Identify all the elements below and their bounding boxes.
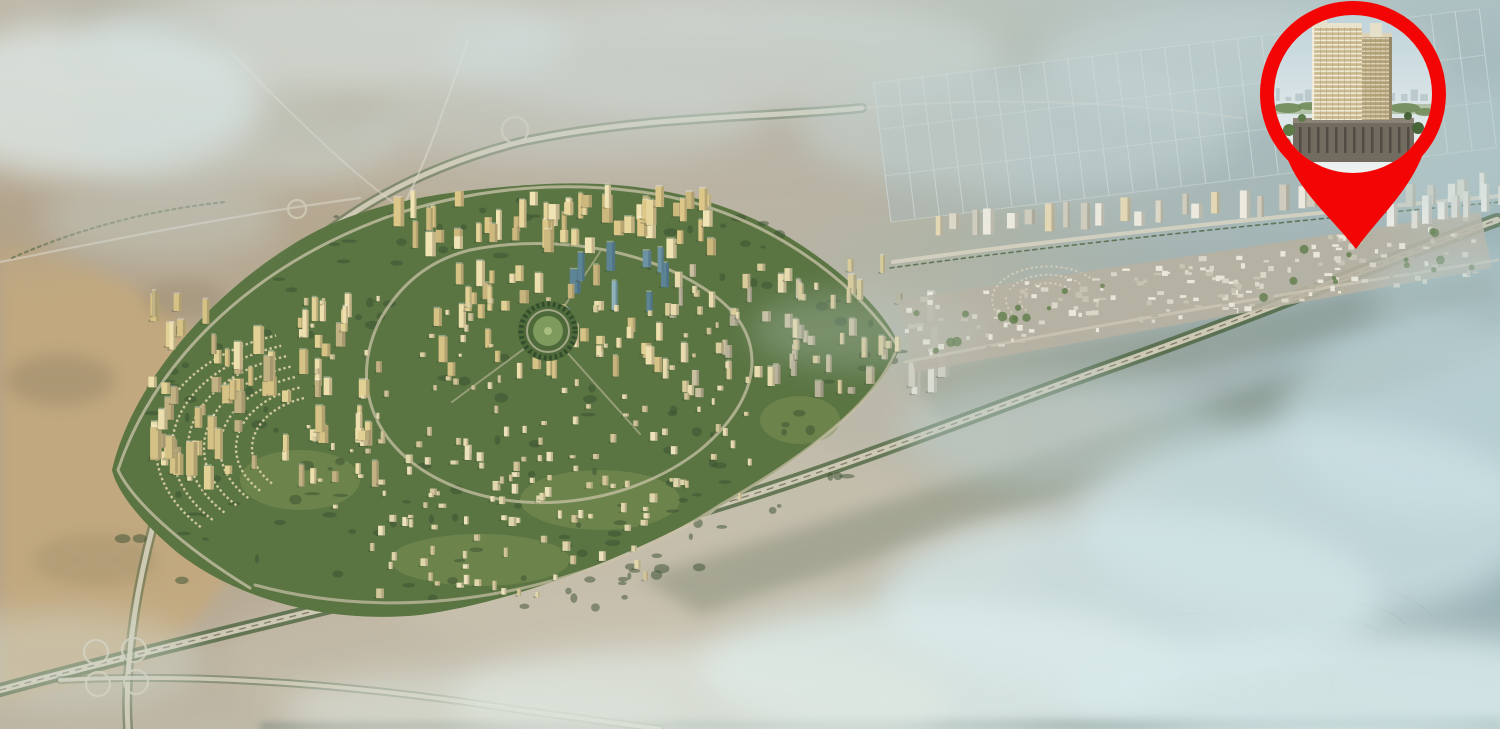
tree-blob — [144, 411, 159, 415]
building-side — [500, 375, 501, 382]
strip-block — [1078, 313, 1081, 317]
strip-green — [1022, 314, 1030, 322]
strip-block — [1210, 266, 1214, 271]
building-side — [436, 525, 438, 530]
building-roof — [681, 341, 687, 343]
building-roof — [234, 340, 241, 342]
building-side — [346, 306, 348, 323]
building-side — [416, 221, 418, 247]
building-side — [444, 504, 447, 508]
building-side — [691, 192, 694, 209]
building-roof — [643, 249, 650, 251]
strip-block — [1096, 302, 1099, 307]
building-side — [180, 454, 183, 475]
building-side — [412, 519, 413, 527]
building-side — [729, 361, 731, 368]
strip-block — [1267, 295, 1273, 301]
building-side — [763, 264, 766, 271]
building-side — [568, 541, 571, 550]
building-side — [721, 386, 723, 391]
tree-blob — [751, 278, 758, 287]
building-roof — [496, 209, 501, 211]
building-side — [1015, 213, 1019, 228]
tree-blob — [396, 238, 407, 246]
building-roof — [166, 435, 174, 437]
strip-block — [1029, 329, 1035, 333]
building-roof — [476, 222, 481, 224]
strip-green — [1300, 245, 1309, 254]
strip-block — [1227, 253, 1232, 256]
strip-block — [1222, 278, 1229, 283]
building-roof — [283, 433, 288, 435]
building-roof — [426, 206, 431, 208]
strip-block — [1260, 272, 1266, 278]
building-roof — [230, 378, 235, 380]
building-side — [612, 242, 615, 271]
strip-block — [1332, 244, 1339, 247]
strip-block — [1129, 300, 1133, 305]
building-side — [545, 421, 547, 425]
building-side — [607, 344, 608, 348]
podium-window — [1344, 127, 1347, 153]
tree-blob — [559, 535, 570, 539]
strip-block — [1222, 307, 1228, 310]
building-shadow — [714, 327, 716, 329]
building-side — [460, 236, 463, 249]
strip-block — [1021, 334, 1026, 337]
building-side — [420, 441, 422, 447]
building-side — [525, 426, 527, 433]
building-roof — [815, 379, 822, 381]
building-side — [713, 238, 716, 255]
tree-blob — [760, 246, 765, 249]
building-side — [617, 356, 619, 377]
building-side — [507, 301, 510, 311]
building-side — [648, 513, 650, 518]
building-side — [466, 551, 467, 559]
strip-block — [1017, 325, 1023, 331]
building-side — [432, 232, 436, 256]
building-roof — [357, 404, 361, 406]
tree-blob — [692, 427, 702, 436]
tree-blob — [454, 559, 466, 562]
strip-block — [1244, 306, 1251, 311]
building-roof — [578, 251, 584, 253]
building-side — [288, 390, 291, 402]
strip-block — [1295, 259, 1299, 262]
tree-blob — [133, 534, 147, 543]
building-side — [365, 431, 369, 441]
building-side — [841, 380, 842, 394]
strip-green — [1100, 283, 1105, 288]
strip-block — [952, 296, 955, 301]
strip-block — [1152, 268, 1155, 272]
building-roof — [202, 298, 207, 300]
building-roof — [605, 184, 610, 186]
building-side — [448, 310, 449, 315]
building-side — [991, 209, 995, 235]
building-side — [474, 292, 477, 304]
building-side — [646, 572, 648, 581]
building-side — [647, 507, 649, 511]
building-side — [1101, 203, 1104, 225]
building-roof — [195, 406, 201, 408]
tree-blob — [712, 462, 726, 468]
tree-blob — [758, 221, 769, 226]
tree-blob — [494, 435, 500, 445]
strip-block — [1309, 284, 1316, 289]
building-side — [207, 299, 209, 324]
strip-block — [1231, 288, 1236, 293]
building-side — [507, 548, 508, 557]
building-side — [541, 455, 542, 461]
building-side — [672, 478, 674, 482]
strip-block — [1229, 303, 1235, 307]
building-side — [234, 380, 236, 400]
building-side — [709, 210, 712, 226]
strip-block — [1153, 285, 1158, 290]
building-side — [450, 376, 452, 380]
building-side — [651, 292, 653, 312]
photo-tree — [1404, 112, 1412, 120]
building-side — [307, 298, 309, 306]
tree-blob — [274, 520, 286, 526]
tree-blob — [438, 246, 448, 253]
photo-skyline — [1276, 88, 1280, 101]
building-side — [467, 325, 468, 332]
building-side — [1051, 204, 1054, 232]
building-roof — [655, 185, 662, 187]
building-side — [638, 560, 640, 569]
tree-blob — [719, 480, 732, 484]
building-side — [380, 361, 382, 372]
building-side — [429, 457, 431, 464]
building-side — [514, 517, 517, 526]
strip-block — [1387, 243, 1392, 247]
building-side — [305, 350, 308, 375]
building-side — [379, 413, 380, 419]
building-roof — [686, 190, 693, 192]
building-side — [461, 354, 462, 357]
strip-block — [1184, 300, 1189, 303]
building-side — [459, 438, 461, 445]
building-roof — [880, 254, 884, 256]
building-side — [667, 359, 669, 379]
building-side — [433, 546, 434, 555]
building-side — [682, 288, 683, 306]
tree-blob — [781, 422, 789, 428]
strip-block — [1312, 245, 1316, 249]
building-roof — [434, 307, 441, 309]
building-roof — [248, 366, 252, 368]
tree-blob — [651, 570, 662, 580]
building-side — [715, 454, 717, 460]
building-side — [614, 434, 616, 443]
building-side — [383, 526, 385, 536]
tree-blob — [263, 406, 268, 412]
tree-blob — [528, 471, 535, 478]
tree-blob — [289, 495, 301, 505]
strip-block — [1093, 299, 1099, 302]
strip-green — [1013, 316, 1018, 321]
building-side — [602, 336, 605, 345]
strip-block — [1052, 302, 1058, 308]
building-side — [535, 192, 538, 206]
building-side — [511, 475, 512, 482]
building-side — [179, 294, 182, 311]
building-side — [661, 186, 664, 207]
strip-block — [1137, 281, 1144, 285]
building-roof — [174, 292, 180, 294]
strip-block — [1180, 306, 1186, 310]
building-side — [431, 572, 433, 580]
tower-wing — [1360, 36, 1392, 120]
podium-window — [1362, 127, 1365, 153]
tree-blob — [781, 429, 787, 436]
building-roof — [268, 350, 274, 352]
building-roof — [215, 427, 222, 429]
building-side — [1127, 197, 1130, 221]
strip-green — [1062, 288, 1068, 294]
photo-skyline — [1401, 94, 1407, 101]
building-roof — [413, 220, 417, 222]
building-side — [695, 353, 696, 357]
haze-cloud — [750, 290, 990, 370]
building-side — [252, 367, 254, 386]
building-side — [384, 431, 385, 439]
building-roof — [476, 259, 483, 261]
building-side — [570, 202, 573, 214]
building-roof — [253, 325, 262, 327]
building-roof — [643, 195, 649, 197]
building-side — [555, 357, 557, 378]
building-side — [549, 297, 551, 301]
building-side — [167, 382, 170, 394]
building-side — [598, 265, 600, 286]
strip-block — [1058, 298, 1063, 301]
building-side — [721, 343, 724, 354]
building-side — [517, 228, 519, 241]
strip-block — [1246, 291, 1252, 293]
building-roof — [299, 348, 306, 350]
building-side — [673, 239, 676, 259]
tower-main — [1312, 26, 1362, 120]
building-roof — [570, 268, 579, 270]
building-side — [631, 217, 635, 234]
strip-block — [1375, 249, 1378, 253]
building-side — [651, 347, 654, 365]
strip-block — [1216, 276, 1220, 282]
tower-highlight — [1312, 26, 1315, 120]
building-side — [518, 462, 520, 471]
strip-block — [1073, 302, 1077, 306]
building-side — [817, 283, 818, 290]
tree-blob — [348, 529, 356, 534]
building-roof — [535, 272, 542, 274]
building-side — [500, 210, 502, 240]
strip-block — [1313, 252, 1319, 258]
photo-skyline — [1392, 93, 1396, 101]
strip-block — [1193, 298, 1199, 302]
building-shadow — [320, 304, 322, 306]
strip-block — [1025, 281, 1030, 285]
building-side — [172, 436, 175, 458]
building-side — [541, 438, 542, 445]
building-side — [158, 427, 162, 459]
strip-block — [1237, 294, 1244, 298]
building-side — [505, 588, 507, 595]
building-side — [701, 388, 704, 397]
building-side — [1262, 196, 1264, 217]
strip-block — [1328, 235, 1333, 239]
building-side — [255, 455, 257, 469]
building-side — [464, 335, 466, 342]
building-side — [551, 229, 554, 252]
building-side — [470, 287, 472, 311]
tree-blob — [447, 577, 458, 585]
building-side — [750, 287, 752, 302]
tree-blob — [115, 534, 131, 543]
strip-green — [1289, 277, 1297, 285]
building-side — [629, 525, 631, 531]
building-side — [199, 441, 202, 456]
building-side — [666, 263, 669, 287]
building-roof — [263, 354, 271, 356]
building-side — [705, 188, 708, 210]
strip-block — [1451, 234, 1456, 237]
roof-box — [1370, 23, 1382, 37]
strip-block — [1218, 294, 1225, 297]
strip-block — [1069, 310, 1076, 316]
building-side — [467, 564, 469, 568]
building-side — [637, 420, 639, 426]
building-side — [734, 440, 736, 448]
building-side — [760, 366, 763, 377]
strip-block — [1195, 305, 1202, 307]
tree-blob — [769, 507, 777, 514]
building-side — [651, 310, 653, 316]
tree-blob — [202, 537, 209, 540]
building-side — [520, 363, 522, 379]
building-side — [1161, 200, 1163, 222]
building-side — [710, 328, 712, 335]
building-side — [175, 451, 178, 474]
tree-blob — [521, 575, 527, 581]
building-side — [240, 379, 244, 391]
strip-block — [1330, 286, 1335, 292]
podium-window — [1299, 127, 1302, 153]
strip-block — [1166, 309, 1170, 311]
strip-block — [1007, 290, 1011, 296]
building-side — [556, 575, 557, 580]
building-side — [242, 391, 246, 413]
tree-blob — [469, 547, 483, 552]
building-side — [430, 427, 432, 436]
strip-block — [1050, 292, 1057, 295]
building-side — [609, 185, 611, 208]
building-side — [394, 515, 396, 522]
tree-blob — [666, 509, 679, 512]
building-side — [738, 312, 739, 319]
park-center — [544, 327, 552, 335]
building-roof — [768, 365, 774, 367]
building-side — [698, 290, 700, 297]
strip-block — [1092, 278, 1100, 280]
building-side — [176, 387, 179, 404]
tree-blob — [333, 215, 338, 218]
building-roof — [646, 198, 654, 200]
strip-block — [1337, 239, 1343, 242]
building-side — [678, 478, 680, 487]
building-side — [316, 436, 318, 441]
strip-block — [1020, 290, 1025, 294]
building-roof — [456, 262, 462, 264]
building-side — [349, 294, 351, 318]
strip-block — [1324, 273, 1332, 276]
building-roof — [656, 321, 661, 323]
tree-blob — [304, 492, 320, 495]
building-roof — [410, 189, 415, 191]
tree-blob — [588, 385, 595, 393]
building-roof — [365, 420, 371, 422]
building-roof — [624, 215, 632, 217]
building-roof — [566, 197, 571, 199]
building-roof — [646, 345, 653, 347]
building-roof — [171, 385, 177, 387]
building-side — [381, 588, 384, 598]
tree-blob — [614, 520, 627, 525]
building-side — [620, 338, 622, 348]
building-side — [526, 290, 529, 303]
building-roof — [489, 222, 495, 224]
building-side — [503, 496, 505, 504]
building-side — [472, 313, 474, 321]
building-side — [164, 409, 167, 429]
building-side — [561, 510, 562, 518]
strip-block — [1255, 282, 1259, 287]
building-side — [934, 368, 937, 393]
strip-block — [1338, 291, 1341, 294]
building-roof — [544, 228, 552, 230]
strip-block — [1287, 267, 1291, 273]
strip-block — [1236, 267, 1240, 272]
building-side — [497, 406, 498, 414]
building-side — [318, 368, 319, 374]
building-roof — [151, 420, 158, 422]
podium-window — [1335, 127, 1338, 153]
building-roof — [177, 318, 184, 320]
tree-blob — [618, 581, 627, 585]
building-side — [688, 393, 690, 400]
building-side — [676, 304, 679, 315]
building-side — [482, 463, 484, 469]
tree-blob — [452, 514, 459, 522]
building-side — [424, 352, 426, 357]
building-side — [228, 349, 230, 366]
building-side — [467, 575, 469, 584]
building-side — [507, 427, 509, 437]
building-side — [681, 230, 683, 244]
building-side — [582, 510, 584, 518]
building-side — [183, 320, 186, 337]
building-side — [240, 420, 243, 432]
building-side — [287, 435, 289, 451]
building-side — [709, 194, 712, 207]
strip-block — [1246, 282, 1250, 285]
strip-block — [1090, 290, 1095, 294]
strip-block — [1080, 286, 1088, 292]
building-side — [589, 195, 592, 207]
